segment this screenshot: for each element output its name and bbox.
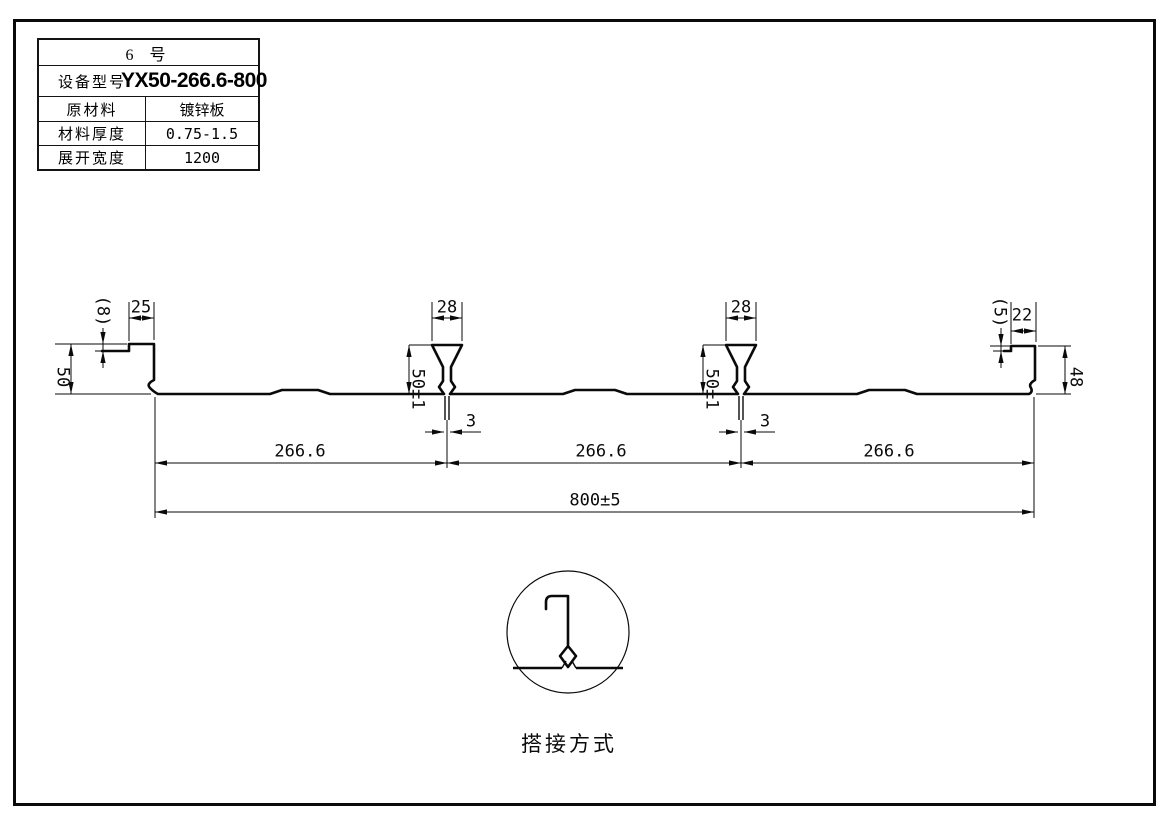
dim-rib1-stem-label: 3 [466,414,476,431]
rib-2 [726,345,756,394]
dimension-lines [55,302,1071,518]
lap-joint-detail [507,571,629,693]
dim-rib1-width-label: 28 [437,300,457,317]
dim-rib2-stem-label: 3 [760,414,770,431]
dim-total-width-label: 800±5 [569,493,620,510]
dim-right-lip-drop-label: (5) [991,297,1008,328]
dim-span2-label: 266.6 [575,444,626,461]
rib-stems [445,396,743,420]
dim-right-flange-label: 22 [1012,308,1032,325]
lap-joint-caption: 搭接方式 [521,728,617,758]
dimension-arrowheads [68,315,1067,514]
dim-left-flange-label: 25 [131,300,151,317]
dim-right-height-label: 48 [1067,367,1084,387]
dim-rib1-height-label: 50±1 [409,369,426,410]
profile-drawing-svg [0,0,1169,827]
drawing-sheet: 6 号 设备型号 YX50-266.6-800 原材料 镀锌板 材料厚度 0.7… [0,0,1169,827]
dim-left-height-label: 50 [54,367,71,387]
dim-rib2-height-label: 50±1 [703,369,720,410]
dim-left-lip-drop-label: (8) [94,296,111,327]
dim-span3-label: 266.6 [863,444,914,461]
rib-1 [432,345,462,394]
profile-outline [102,344,1035,394]
detail-hook-profile [546,596,576,667]
dim-span1-label: 266.6 [274,444,325,461]
dim-rib2-width-label: 28 [731,300,751,317]
